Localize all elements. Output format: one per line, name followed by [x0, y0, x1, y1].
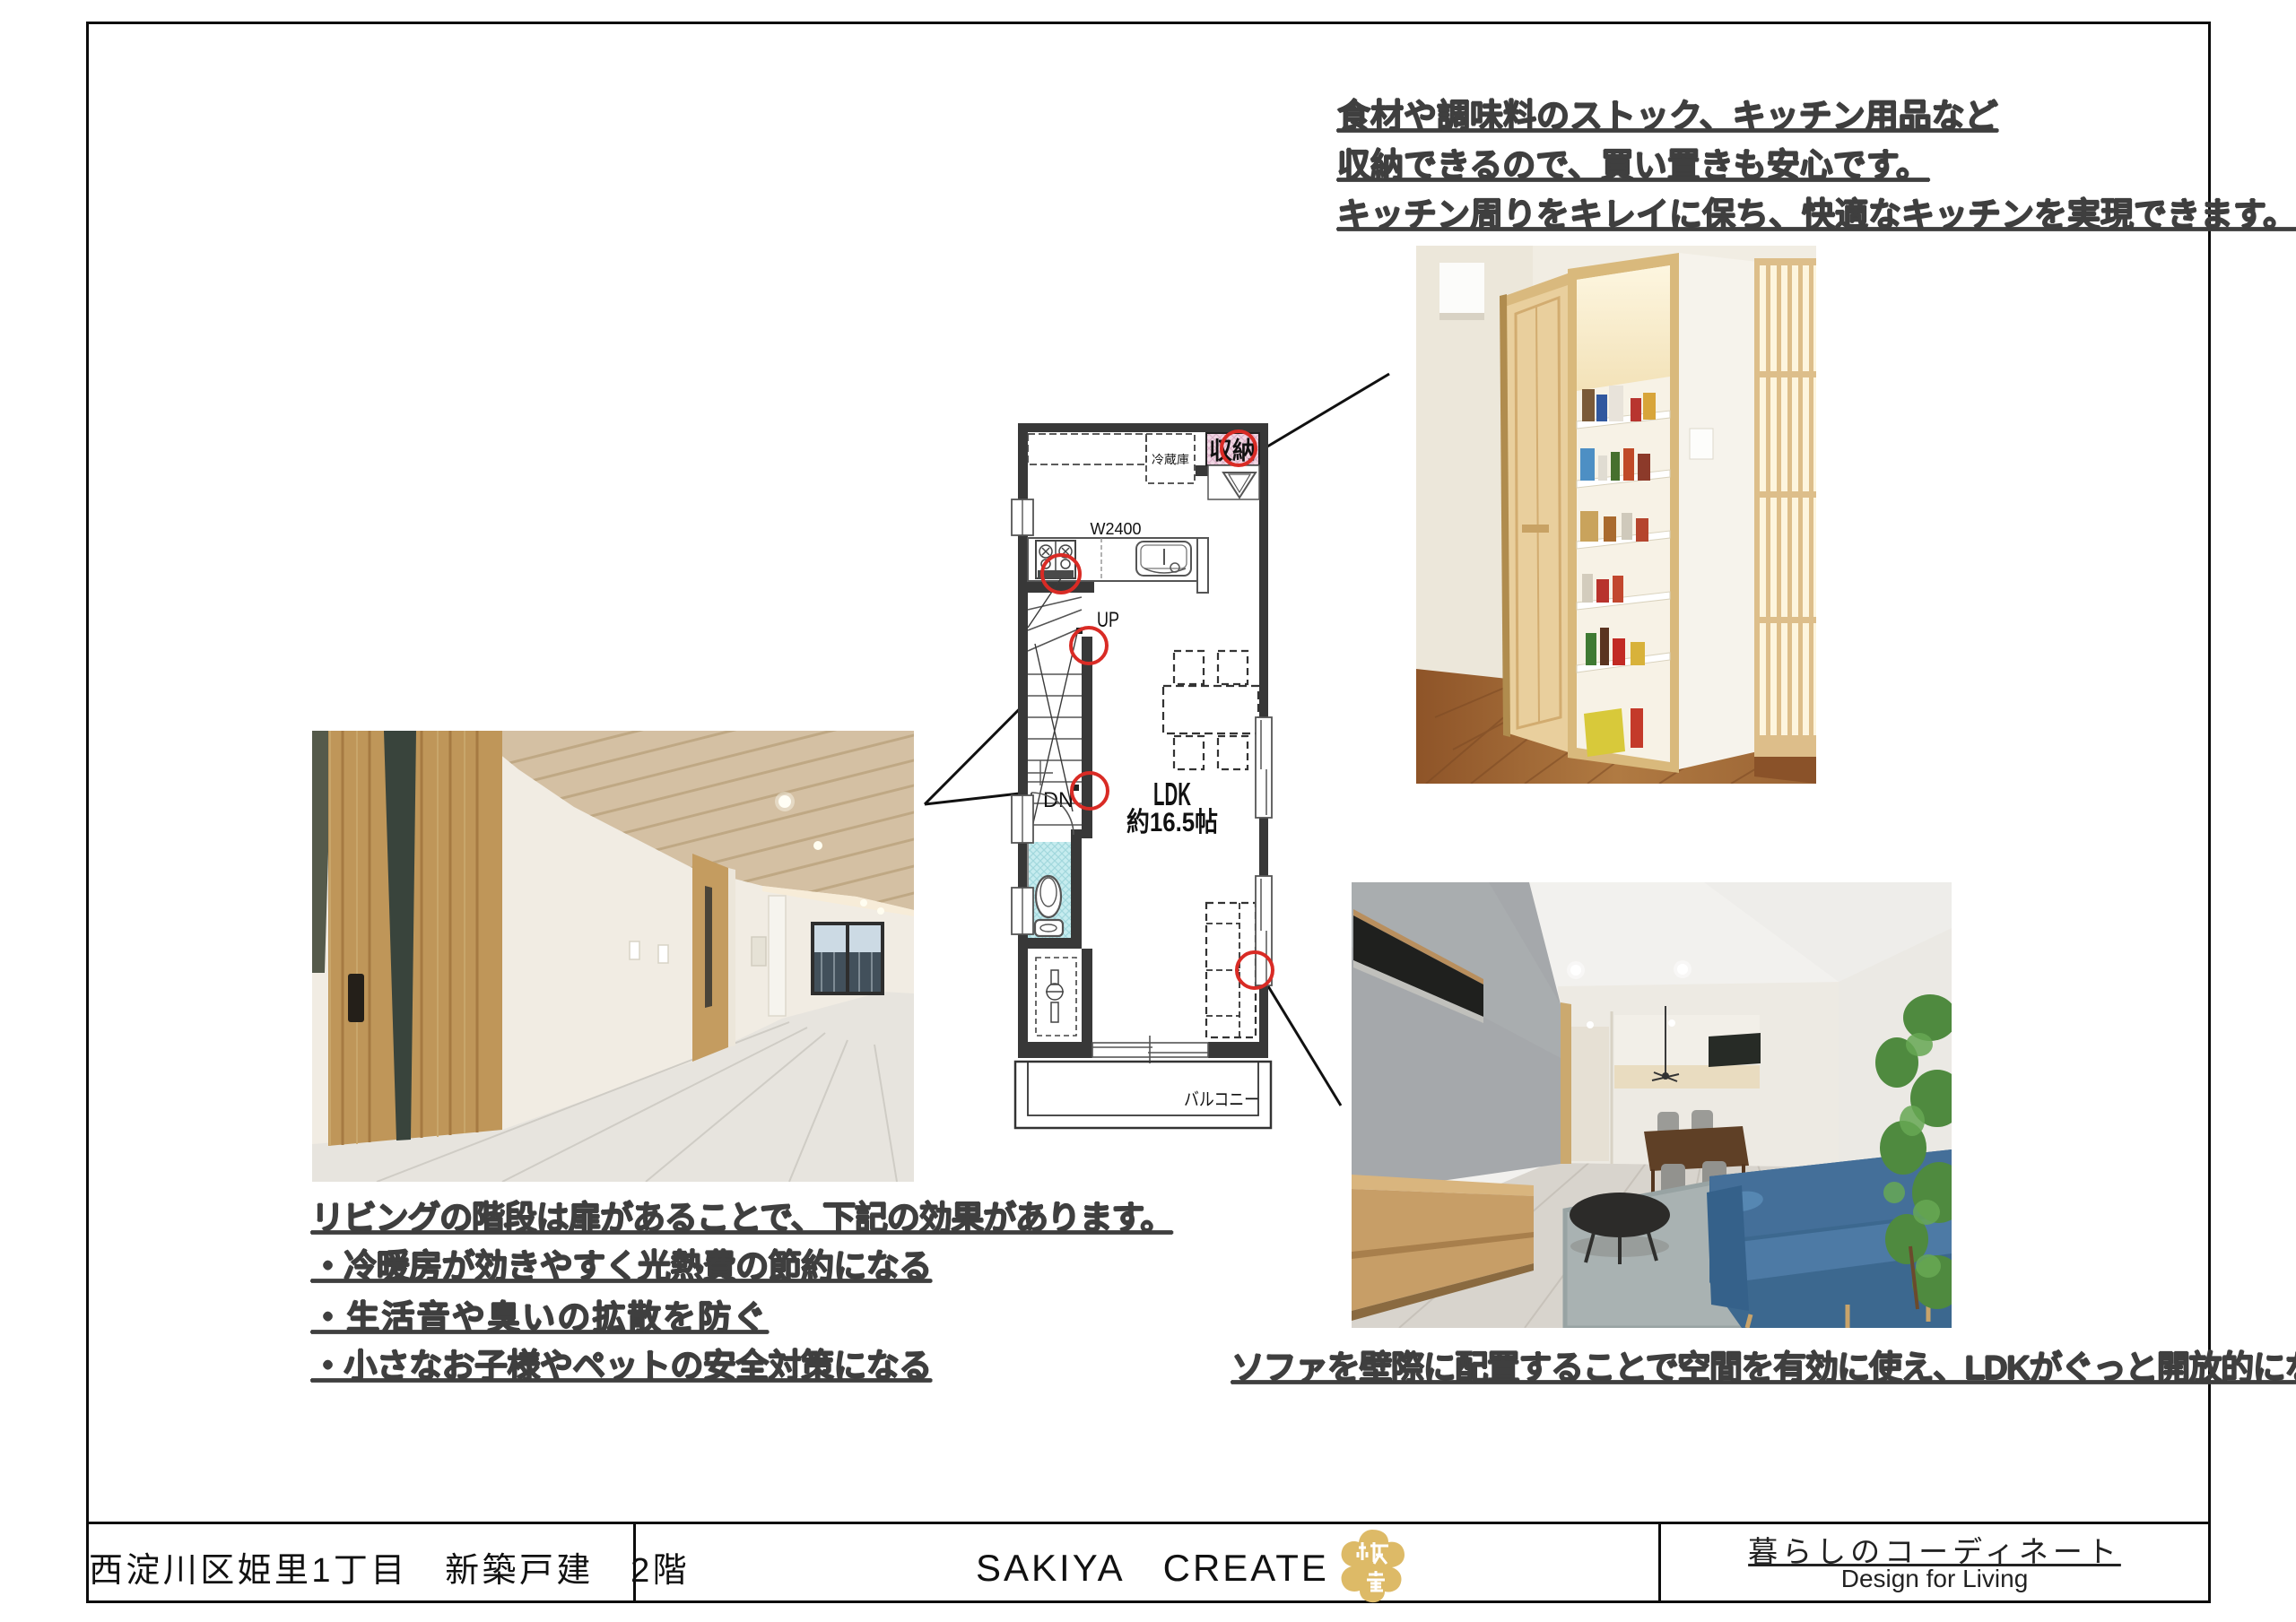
- svg-text:UP: UP: [1097, 608, 1119, 632]
- svg-text:約16.5帖: 約16.5帖: [1126, 808, 1218, 837]
- svg-text:LDK: LDK: [1153, 776, 1191, 812]
- svg-text:DN: DN: [1043, 788, 1074, 812]
- svg-text:W2400: W2400: [1090, 520, 1141, 538]
- svg-text:冷蔵庫: 冷蔵庫: [1152, 453, 1189, 466]
- svg-text:バルコニー: バルコニー: [1184, 1090, 1259, 1110]
